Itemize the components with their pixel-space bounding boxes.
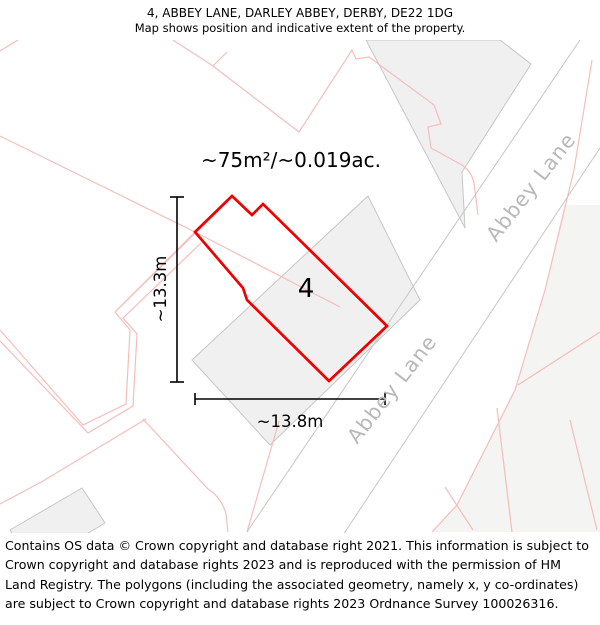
parcel-boundary-line (143, 419, 228, 532)
plot-number-label: 4 (298, 274, 315, 304)
page-subtitle: Map shows position and indicative extent… (0, 21, 600, 35)
property-map-page: 4, ABBEY LANE, DARLEY ABBEY, DERBY, DE22… (0, 0, 600, 625)
parcel-se-fill (432, 205, 600, 532)
area-label: ~75m²/~0.019ac. (201, 148, 381, 172)
parcel-boundary-line (0, 419, 146, 504)
map-area: ~75m²/~0.019ac. 4 ~13.3m ~13.8m Abbey La… (0, 40, 600, 533)
header: 4, ABBEY LANE, DARLEY ABBEY, DERBY, DE22… (0, 0, 600, 40)
page-title: 4, ABBEY LANE, DARLEY ABBEY, DERBY, DE22… (0, 0, 600, 21)
footpath-edge-line (0, 243, 201, 433)
buildings (10, 40, 531, 533)
building-southwest (10, 488, 105, 533)
parcel-boundary-line (0, 40, 18, 51)
attribution-footer: Contains OS data © Crown copyright and d… (0, 533, 600, 625)
map-canvas: ~75m²/~0.019ac. 4 ~13.3m ~13.8m Abbey La… (0, 40, 600, 533)
footer-attribution-text: Contains OS data © Crown copyright and d… (5, 538, 589, 611)
width-dimension-label: ~13.8m (257, 412, 324, 431)
parcel-boundary-line (213, 52, 227, 66)
height-dimension-label: ~13.3m (151, 256, 170, 323)
